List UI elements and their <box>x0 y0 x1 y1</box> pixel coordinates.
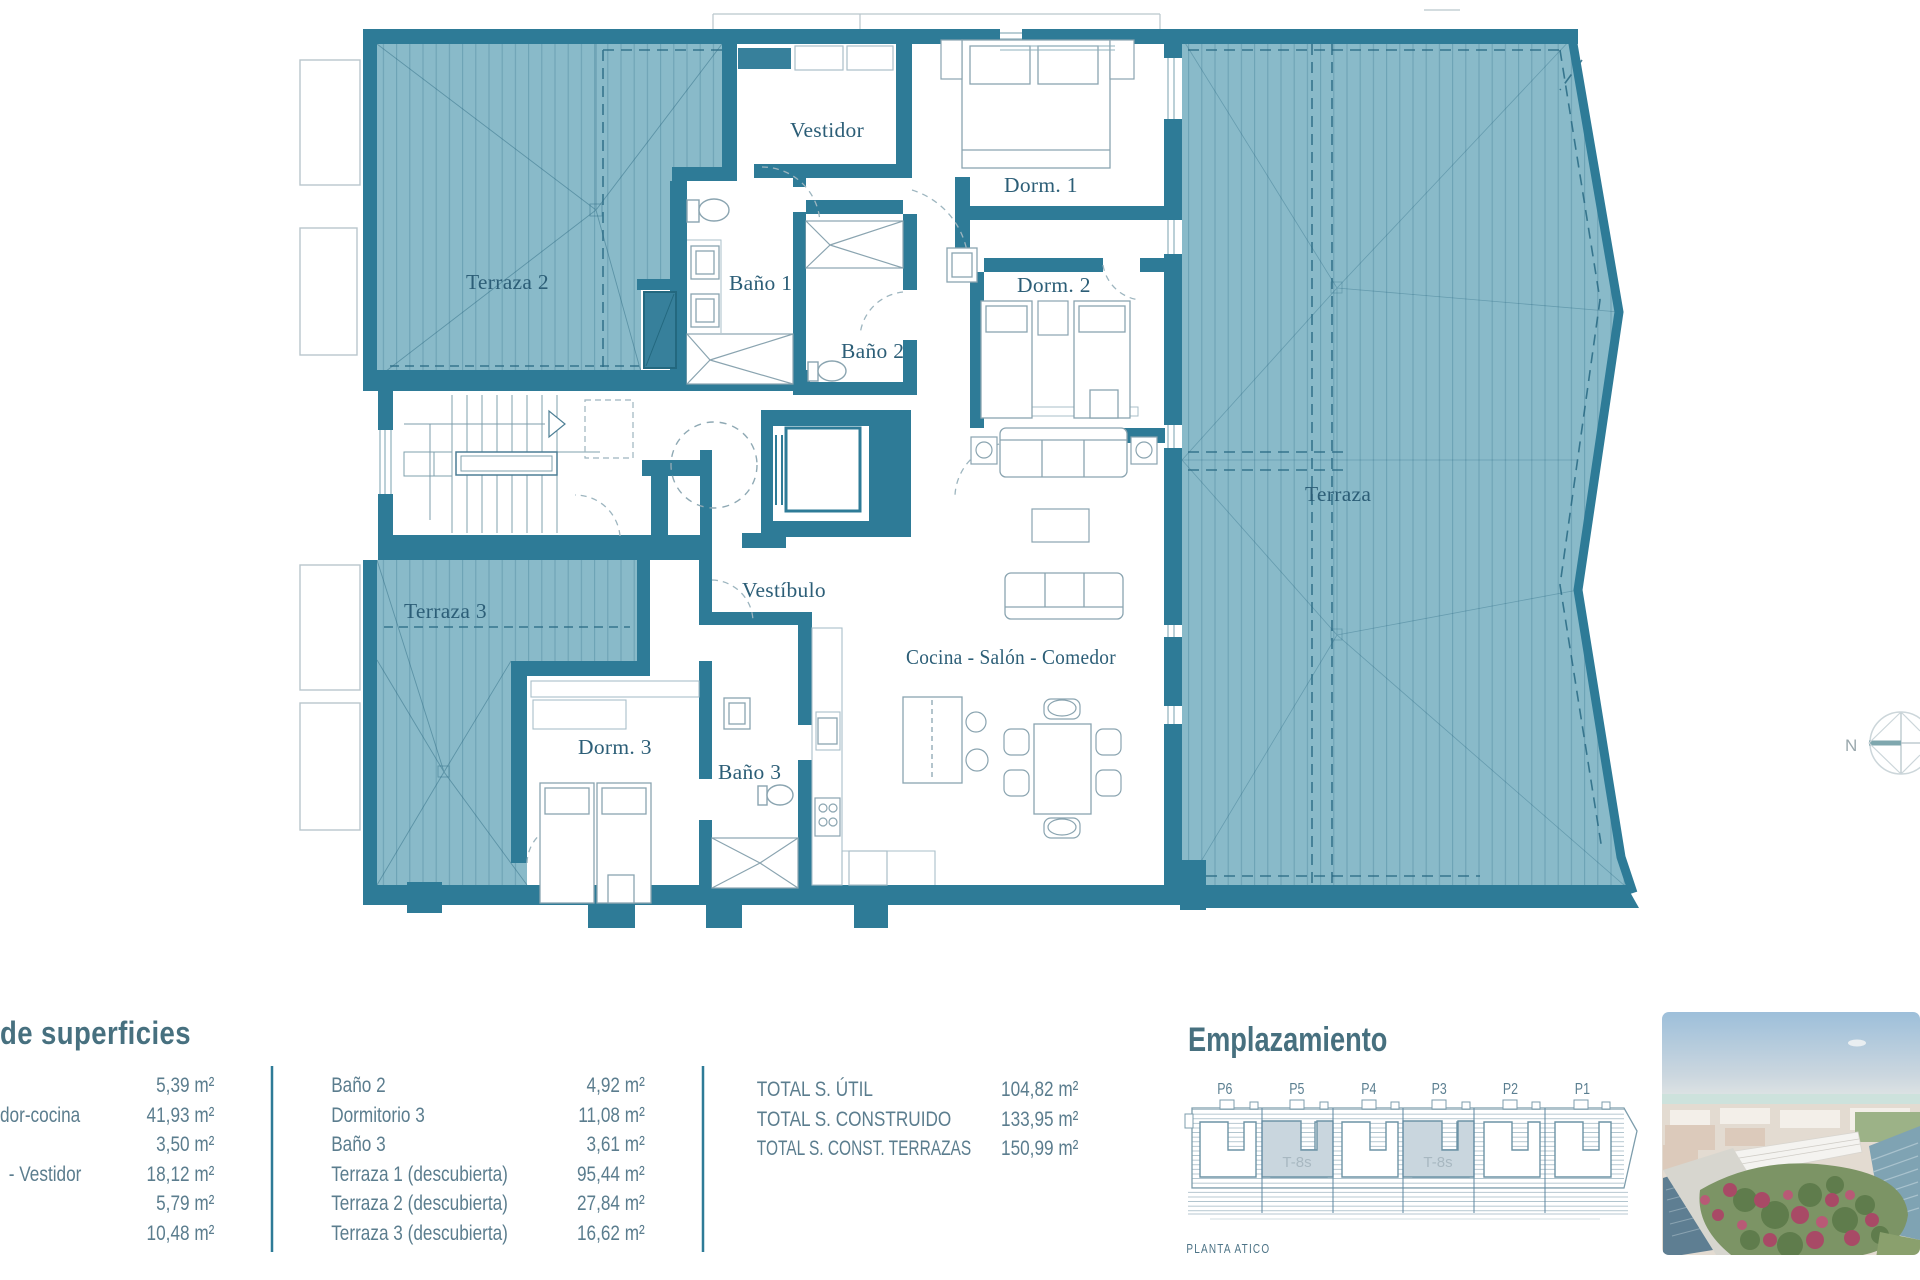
svg-text:11,08 m²: 11,08 m² <box>578 1103 645 1127</box>
svg-text:Emplazamiento: Emplazamiento <box>1188 1020 1387 1059</box>
svg-text:T-8s: T-8s <box>1423 1154 1452 1171</box>
svg-text:95,44 m²: 95,44 m² <box>577 1162 645 1186</box>
svg-text:104,82 m²: 104,82 m² <box>1001 1077 1079 1101</box>
svg-text:P3: P3 <box>1432 1080 1447 1098</box>
svg-text:Baño 3: Baño 3 <box>718 760 781 784</box>
svg-text:Baño 2: Baño 2 <box>841 339 904 363</box>
svg-text:Terraza 2 (descubierta): Terraza 2 (descubierta) <box>331 1191 508 1215</box>
svg-text:Terraza 1 (descubierta): Terraza 1 (descubierta) <box>331 1162 508 1186</box>
svg-text:Cocina - Salón - Comedor: Cocina - Salón - Comedor <box>906 645 1116 669</box>
svg-text:133,95 m²: 133,95 m² <box>1001 1107 1079 1131</box>
svg-text:TOTAL S. ÚTIL: TOTAL S. ÚTIL <box>757 1076 873 1101</box>
svg-text:Baño 3: Baño 3 <box>331 1132 385 1156</box>
svg-text:Terraza 2: Terraza 2 <box>466 270 549 294</box>
svg-text:Baño 2: Baño 2 <box>331 1073 385 1097</box>
svg-text:16,62 m²: 16,62 m² <box>577 1221 645 1245</box>
svg-text:Terraza 3 (descubierta): Terraza 3 (descubierta) <box>331 1221 508 1245</box>
svg-text:N: N <box>1845 736 1857 755</box>
svg-text:P1: P1 <box>1575 1080 1590 1098</box>
svg-text:10,48 m²: 10,48 m² <box>147 1221 215 1245</box>
svg-text:P4: P4 <box>1361 1080 1376 1098</box>
svg-text:Dormitorio 3: Dormitorio 3 <box>331 1103 425 1127</box>
svg-text:Vestidor: Vestidor <box>790 118 864 142</box>
svg-text:150,99 m²: 150,99 m² <box>1001 1136 1079 1160</box>
svg-text:3,50 m²: 3,50 m² <box>156 1132 215 1156</box>
svg-text:P5: P5 <box>1289 1080 1304 1098</box>
svg-text:Baño 1: Baño 1 <box>729 271 792 295</box>
svg-text:Dorm. 3: Dorm. 3 <box>578 735 652 759</box>
svg-text:4,92 m²: 4,92 m² <box>587 1073 646 1097</box>
svg-text:PLANTA ATICO: PLANTA ATICO <box>1186 1243 1270 1256</box>
svg-text:P2: P2 <box>1503 1080 1518 1098</box>
svg-text:5,39 m²: 5,39 m² <box>156 1073 215 1097</box>
svg-text:dor-cocina: dor-cocina <box>0 1103 80 1127</box>
svg-text:27,84 m²: 27,84 m² <box>577 1191 645 1215</box>
svg-text:Terraza: Terraza <box>1305 482 1371 506</box>
svg-text:TOTAL S. CONSTRUIDO: TOTAL S. CONSTRUIDO <box>757 1107 951 1131</box>
svg-text:- Vestidor: - Vestidor <box>9 1162 82 1186</box>
svg-text:41,93 m²: 41,93 m² <box>147 1103 215 1127</box>
svg-text:de superficies: de superficies <box>0 1016 191 1051</box>
svg-text:Dorm. 2: Dorm. 2 <box>1017 273 1091 297</box>
svg-text:TOTAL S. CONST. TERRAZAS: TOTAL S. CONST. TERRAZAS <box>757 1136 971 1160</box>
svg-text:5,79 m²: 5,79 m² <box>156 1191 215 1215</box>
svg-text:T-8s: T-8s <box>1282 1154 1311 1171</box>
svg-text:3,61 m²: 3,61 m² <box>587 1132 646 1156</box>
svg-text:P6: P6 <box>1217 1080 1232 1098</box>
svg-text:Dorm. 1: Dorm. 1 <box>1004 173 1078 197</box>
svg-text:Vestíbulo: Vestíbulo <box>742 578 826 602</box>
svg-text:Terraza 3: Terraza 3 <box>404 599 487 623</box>
svg-text:18,12 m²: 18,12 m² <box>147 1162 215 1186</box>
